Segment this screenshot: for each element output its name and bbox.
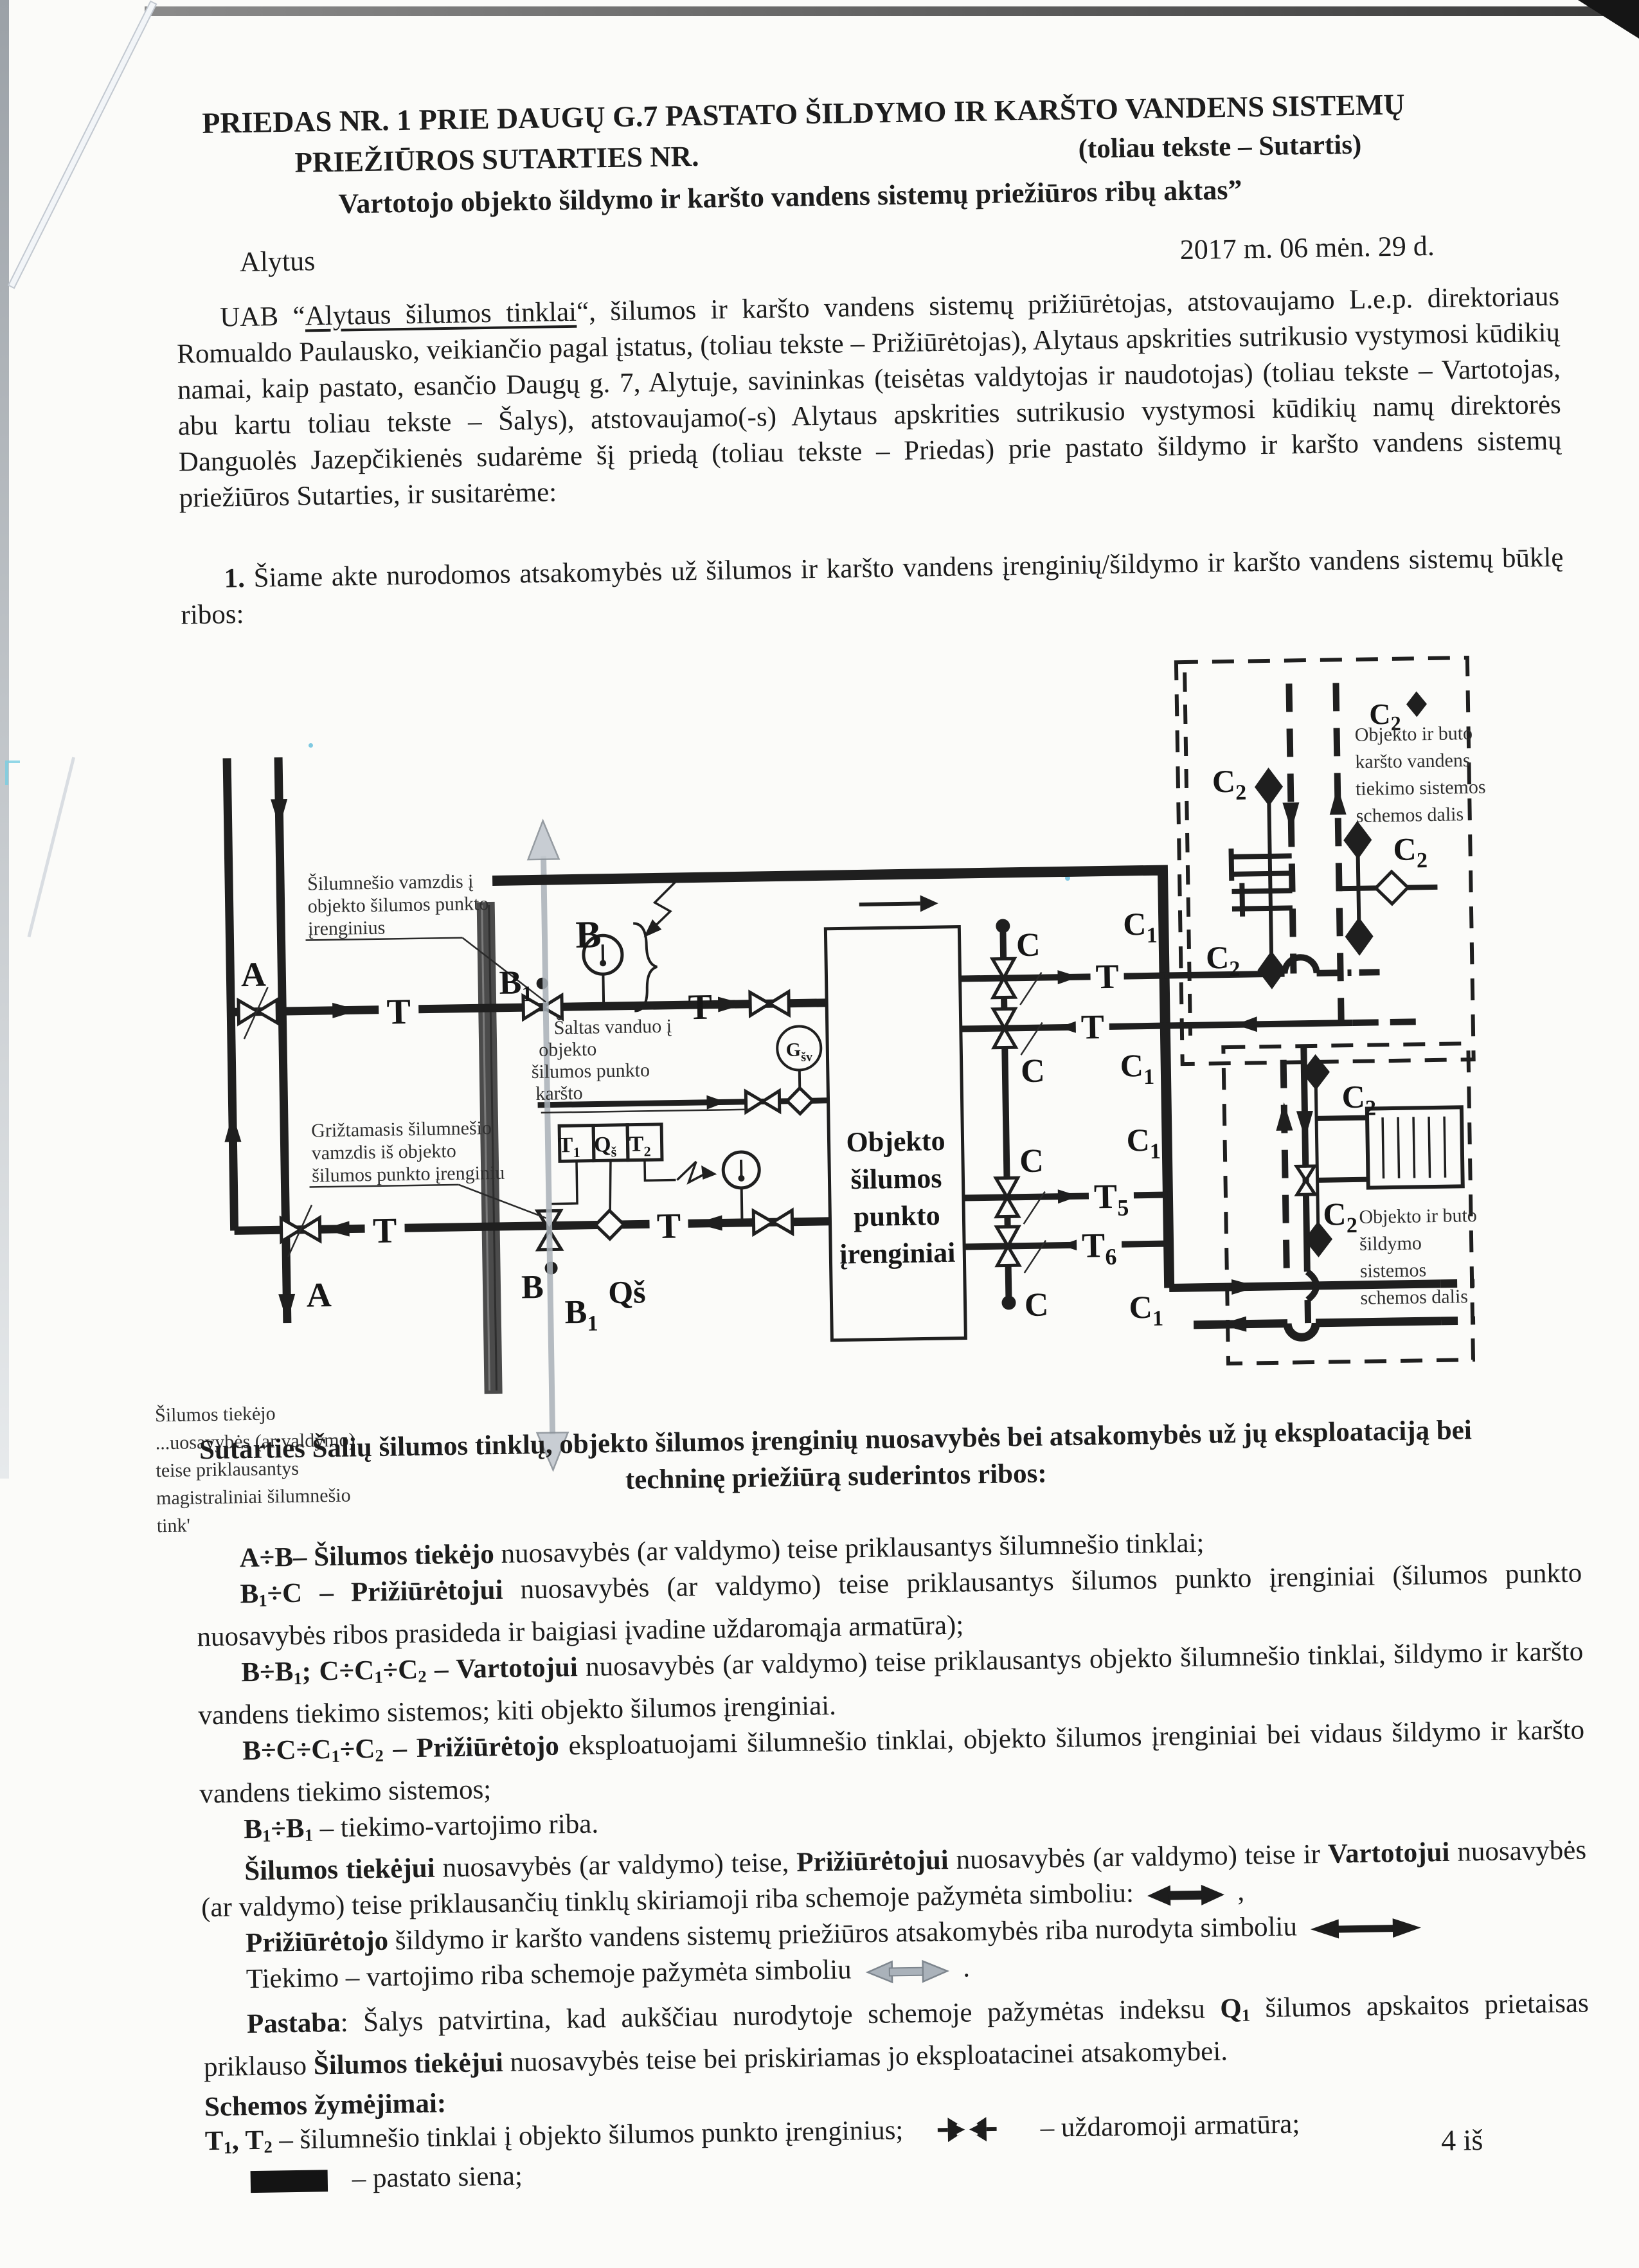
label-C1: C1 — [1126, 1122, 1161, 1164]
label-meter-T1: T1 — [558, 1133, 580, 1161]
label-C: C — [1021, 1053, 1045, 1090]
svg-text:įrenginiai: įrenginiai — [839, 1237, 956, 1270]
supply-use-boundary-icon — [864, 1957, 950, 1986]
label-C: C — [1024, 1286, 1048, 1324]
label-C: C — [1016, 927, 1041, 964]
wall-icon — [251, 2170, 328, 2193]
svg-text:Šilumnešio vamzdis į: Šilumnešio vamzdis į — [307, 870, 474, 894]
legend-block: A÷B– Šilumos tiekėjo nuosavybės (ar vald… — [195, 1519, 1591, 2205]
svg-text:Šilumos tiekėjo: Šilumos tiekėjo — [155, 1403, 276, 1426]
label-B-bottom: B — [521, 1269, 544, 1306]
label-B1-bottom: B1 — [564, 1293, 598, 1336]
valve-A-supply — [238, 1000, 278, 1023]
armatura-label: – uždaromoji armatūra; — [1040, 2109, 1300, 2144]
label-B-top: B — [575, 913, 602, 956]
valve-return-outlet — [753, 1210, 793, 1234]
scanned-document-page: { "header": { "title1": "PRIEDAS NR. 1 P… — [0, 0, 1639, 2255]
document-title-line3: Vartotojo objekto šildymo ir karšto vand… — [244, 172, 1337, 222]
svg-text:schemos dalis: schemos dalis — [1356, 804, 1464, 827]
label-A-supply: A — [240, 955, 266, 995]
title-contract-no: PRIEŽIŪROS SUTARTIES NR. — [294, 139, 699, 179]
label-C: C — [1019, 1143, 1044, 1180]
svg-text:Objekto: Objekto — [846, 1125, 945, 1158]
label-T-hw-supply: T — [1095, 957, 1119, 996]
valve-symbol-slot — [931, 2114, 1003, 2145]
label-B1-top: B1 — [499, 964, 533, 1007]
label-C2: C2 — [1212, 763, 1246, 806]
svg-text:įrenginius: įrenginius — [308, 917, 386, 940]
label-T-hw-return: T — [1080, 1007, 1104, 1047]
svg-text:šildymo: šildymo — [1359, 1232, 1422, 1255]
valve-supply-inlet — [750, 992, 789, 1016]
svg-text:karšto: karšto — [535, 1083, 583, 1104]
svg-text:tiekimo sistemos: tiekimo sistemos — [1356, 777, 1486, 800]
label-C1: C1 — [1123, 906, 1158, 948]
svg-text:vamzdis iš objekto: vamzdis iš objekto — [311, 1140, 456, 1164]
svg-text:karšto vandens: karšto vandens — [1355, 750, 1471, 773]
heat-point-equipment-box: Objekto šilumos punkto įrenginiai — [825, 927, 965, 1340]
document-date: 2017 m. 06 mėn. 29 d. — [1179, 230, 1435, 266]
ownership-dashed-boundary — [1185, 672, 1190, 1036]
svg-text:Grižtamasis šilumnešio: Grižtamasis šilumnešio — [311, 1117, 492, 1141]
ownership-boundary-icon — [1147, 1882, 1224, 1908]
label-C1: C1 — [1120, 1047, 1154, 1090]
point1-paragraph: 1. Šiame akte nurodomos atsakomybės už š… — [180, 540, 1564, 634]
svg-text:sistemos: sistemos — [1360, 1259, 1427, 1282]
flow-meter-connector — [595, 1210, 624, 1239]
label-meter-Qs: Qš — [594, 1133, 617, 1160]
siena-label: – pastato siena; — [352, 2161, 523, 2195]
svg-text:Šaltas vanduo į: Šaltas vanduo į — [553, 1016, 672, 1039]
svg-text:objekto: objekto — [539, 1038, 597, 1060]
intro-paragraph: UAB “Alytaus šilumos tinklai“, šilumos i… — [176, 279, 1563, 517]
svg-text:tink': tink' — [157, 1515, 191, 1536]
label-Qs: Qš — [608, 1273, 646, 1310]
label-T-supply-right: T — [688, 987, 712, 1028]
document-title-line2: PRIEŽIŪROS SUTARTIES NR. (toliau tekste … — [294, 129, 1362, 179]
label-meter-T2: T2 — [629, 1132, 650, 1160]
svg-text:Objekto ir buto: Objekto ir buto — [1359, 1205, 1477, 1228]
label-C1: C1 — [1129, 1289, 1163, 1331]
label-C2: C2 — [1393, 831, 1428, 873]
svg-text:šilumos: šilumos — [850, 1162, 942, 1195]
label-A-return: A — [306, 1275, 332, 1315]
maintenance-boundary-icon — [1310, 1915, 1421, 1941]
label-T-supply-left: T — [386, 992, 411, 1032]
svg-text:punkto: punkto — [854, 1200, 940, 1232]
document-content: PRIEDAS NR. 1 PRIE DAUGŲ G.7 PASTATO ŠIL… — [0, 0, 1639, 2268]
svg-text:šilumos punkto įrenginiu: šilumos punkto įrenginiu — [312, 1162, 505, 1187]
label-Gsv: Gšv — [785, 1039, 812, 1065]
page-number: 4 iš — [1441, 2123, 1483, 2157]
label-T-return-right: T — [656, 1206, 681, 1246]
title-contract-alias: (toliau tekste – Sutartis) — [1078, 129, 1361, 167]
svg-text:schemos dalis: schemos dalis — [1360, 1286, 1468, 1309]
svg-text:objekto šilumos punkto: objekto šilumos punkto — [307, 893, 488, 917]
valve-icon — [937, 2114, 997, 2145]
label-C2: C2 — [1323, 1196, 1357, 1238]
label-T-return-left: T — [372, 1210, 397, 1251]
label-C2: C2 — [1341, 1078, 1376, 1120]
document-city: Alytus — [240, 244, 316, 278]
svg-text:Objekto ir buto: Objekto ir buto — [1354, 723, 1473, 746]
object-systems-collector — [959, 917, 1170, 1311]
svg-text:šilumos punkto: šilumos punkto — [532, 1059, 650, 1083]
label-C2: C2 — [1206, 939, 1240, 982]
hot-water-scheme-box — [1176, 658, 1474, 1064]
